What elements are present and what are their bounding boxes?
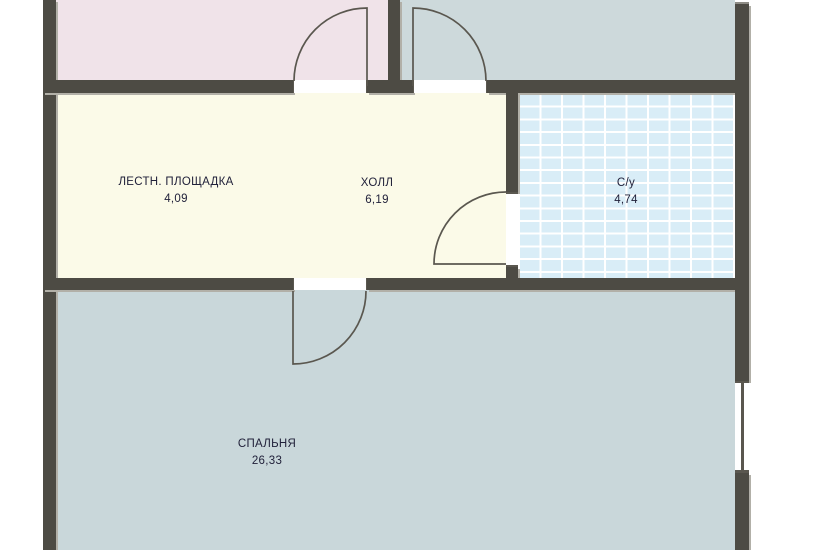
door-opening-top-right-room [413,80,487,93]
wall-right-outer-top [735,4,749,381]
wall-right-outer-bottom [735,473,749,550]
window-glass-line [741,383,744,470]
wall-top-h-seg3 [487,80,749,93]
room-bedroom [56,290,735,550]
room-label-landing: ЛЕСТН. ПЛОЩАДКА 4,09 [118,174,233,208]
door-opening-bedroom [293,278,367,290]
room-area: 26,33 [238,453,296,470]
room-label-bedroom: СПАЛЬНЯ 26,33 [238,436,296,470]
wall-bathroom-v-seg1 [506,93,518,192]
wall-bottom-h-seg2 [367,278,749,290]
room-name: СПАЛЬНЯ [238,436,296,453]
room-area: 6,19 [361,192,393,209]
floor-plan: ЛЕСТН. ПЛОЩАДКА 4,09 ХОЛЛ 6,19 С/у 4,74 … [0,0,825,550]
window-edge-line [735,2,749,4]
room-label-bathroom: С/у 4,74 [614,175,638,209]
room-area: 4,74 [614,192,638,209]
door-opening-top-left-room [293,80,367,93]
room-name: С/у [614,175,638,192]
window-sill-bottom [735,470,749,473]
room-area: 4,09 [118,191,233,208]
wall-bottom-h-seg1 [43,278,293,290]
room-name: ЛЕСТН. ПЛОЩАДКА [118,174,233,191]
room-name: ХОЛЛ [361,175,393,192]
wall-top-h-seg1 [43,80,293,93]
door-opening-bathroom [506,192,518,267]
room-top-left [56,0,388,80]
room-top-right [400,0,735,80]
room-label-hall: ХОЛЛ 6,19 [361,175,393,209]
wall-top-h-seg2 [367,80,413,93]
